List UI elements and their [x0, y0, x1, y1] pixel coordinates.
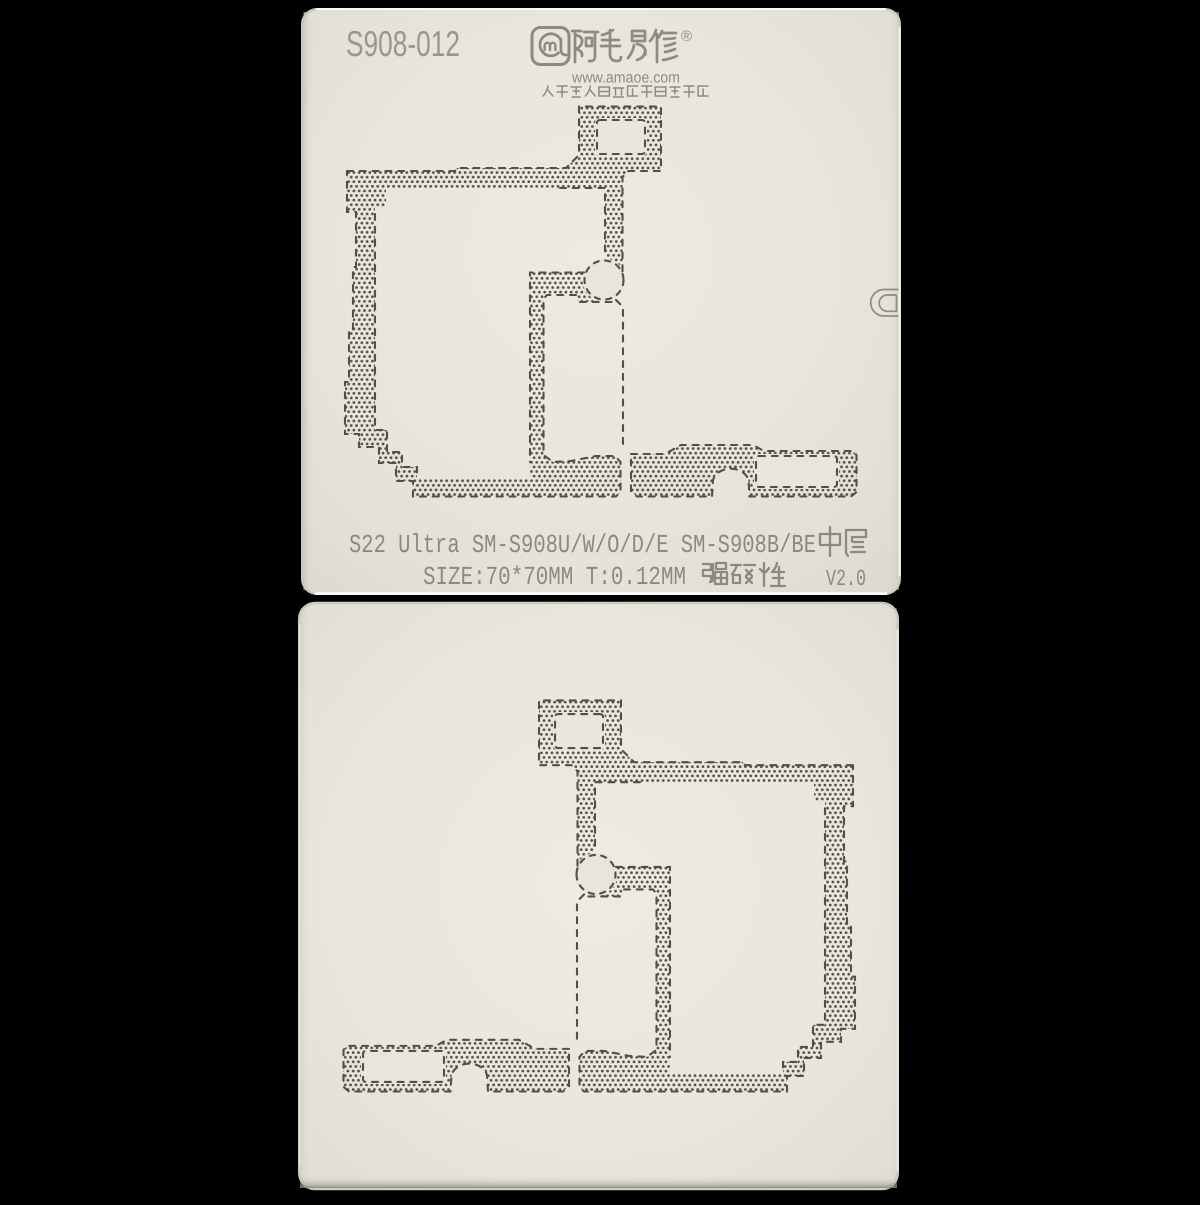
svg-text:www.amaoe.com: www.amaoe.com — [571, 70, 680, 87]
svg-text:V2.0: V2.0 — [826, 566, 866, 592]
svg-text:S22 Ultra SM-S908U/W/O/D/E SM-: S22 Ultra SM-S908U/W/O/D/E SM-S908B/BE — [349, 530, 816, 560]
svg-text:S908-012: S908-012 — [346, 23, 460, 64]
svg-text:®: ® — [681, 28, 692, 45]
svg-text:SIZE:70*70MM T:0.12MM: SIZE:70*70MM T:0.12MM — [423, 562, 686, 592]
